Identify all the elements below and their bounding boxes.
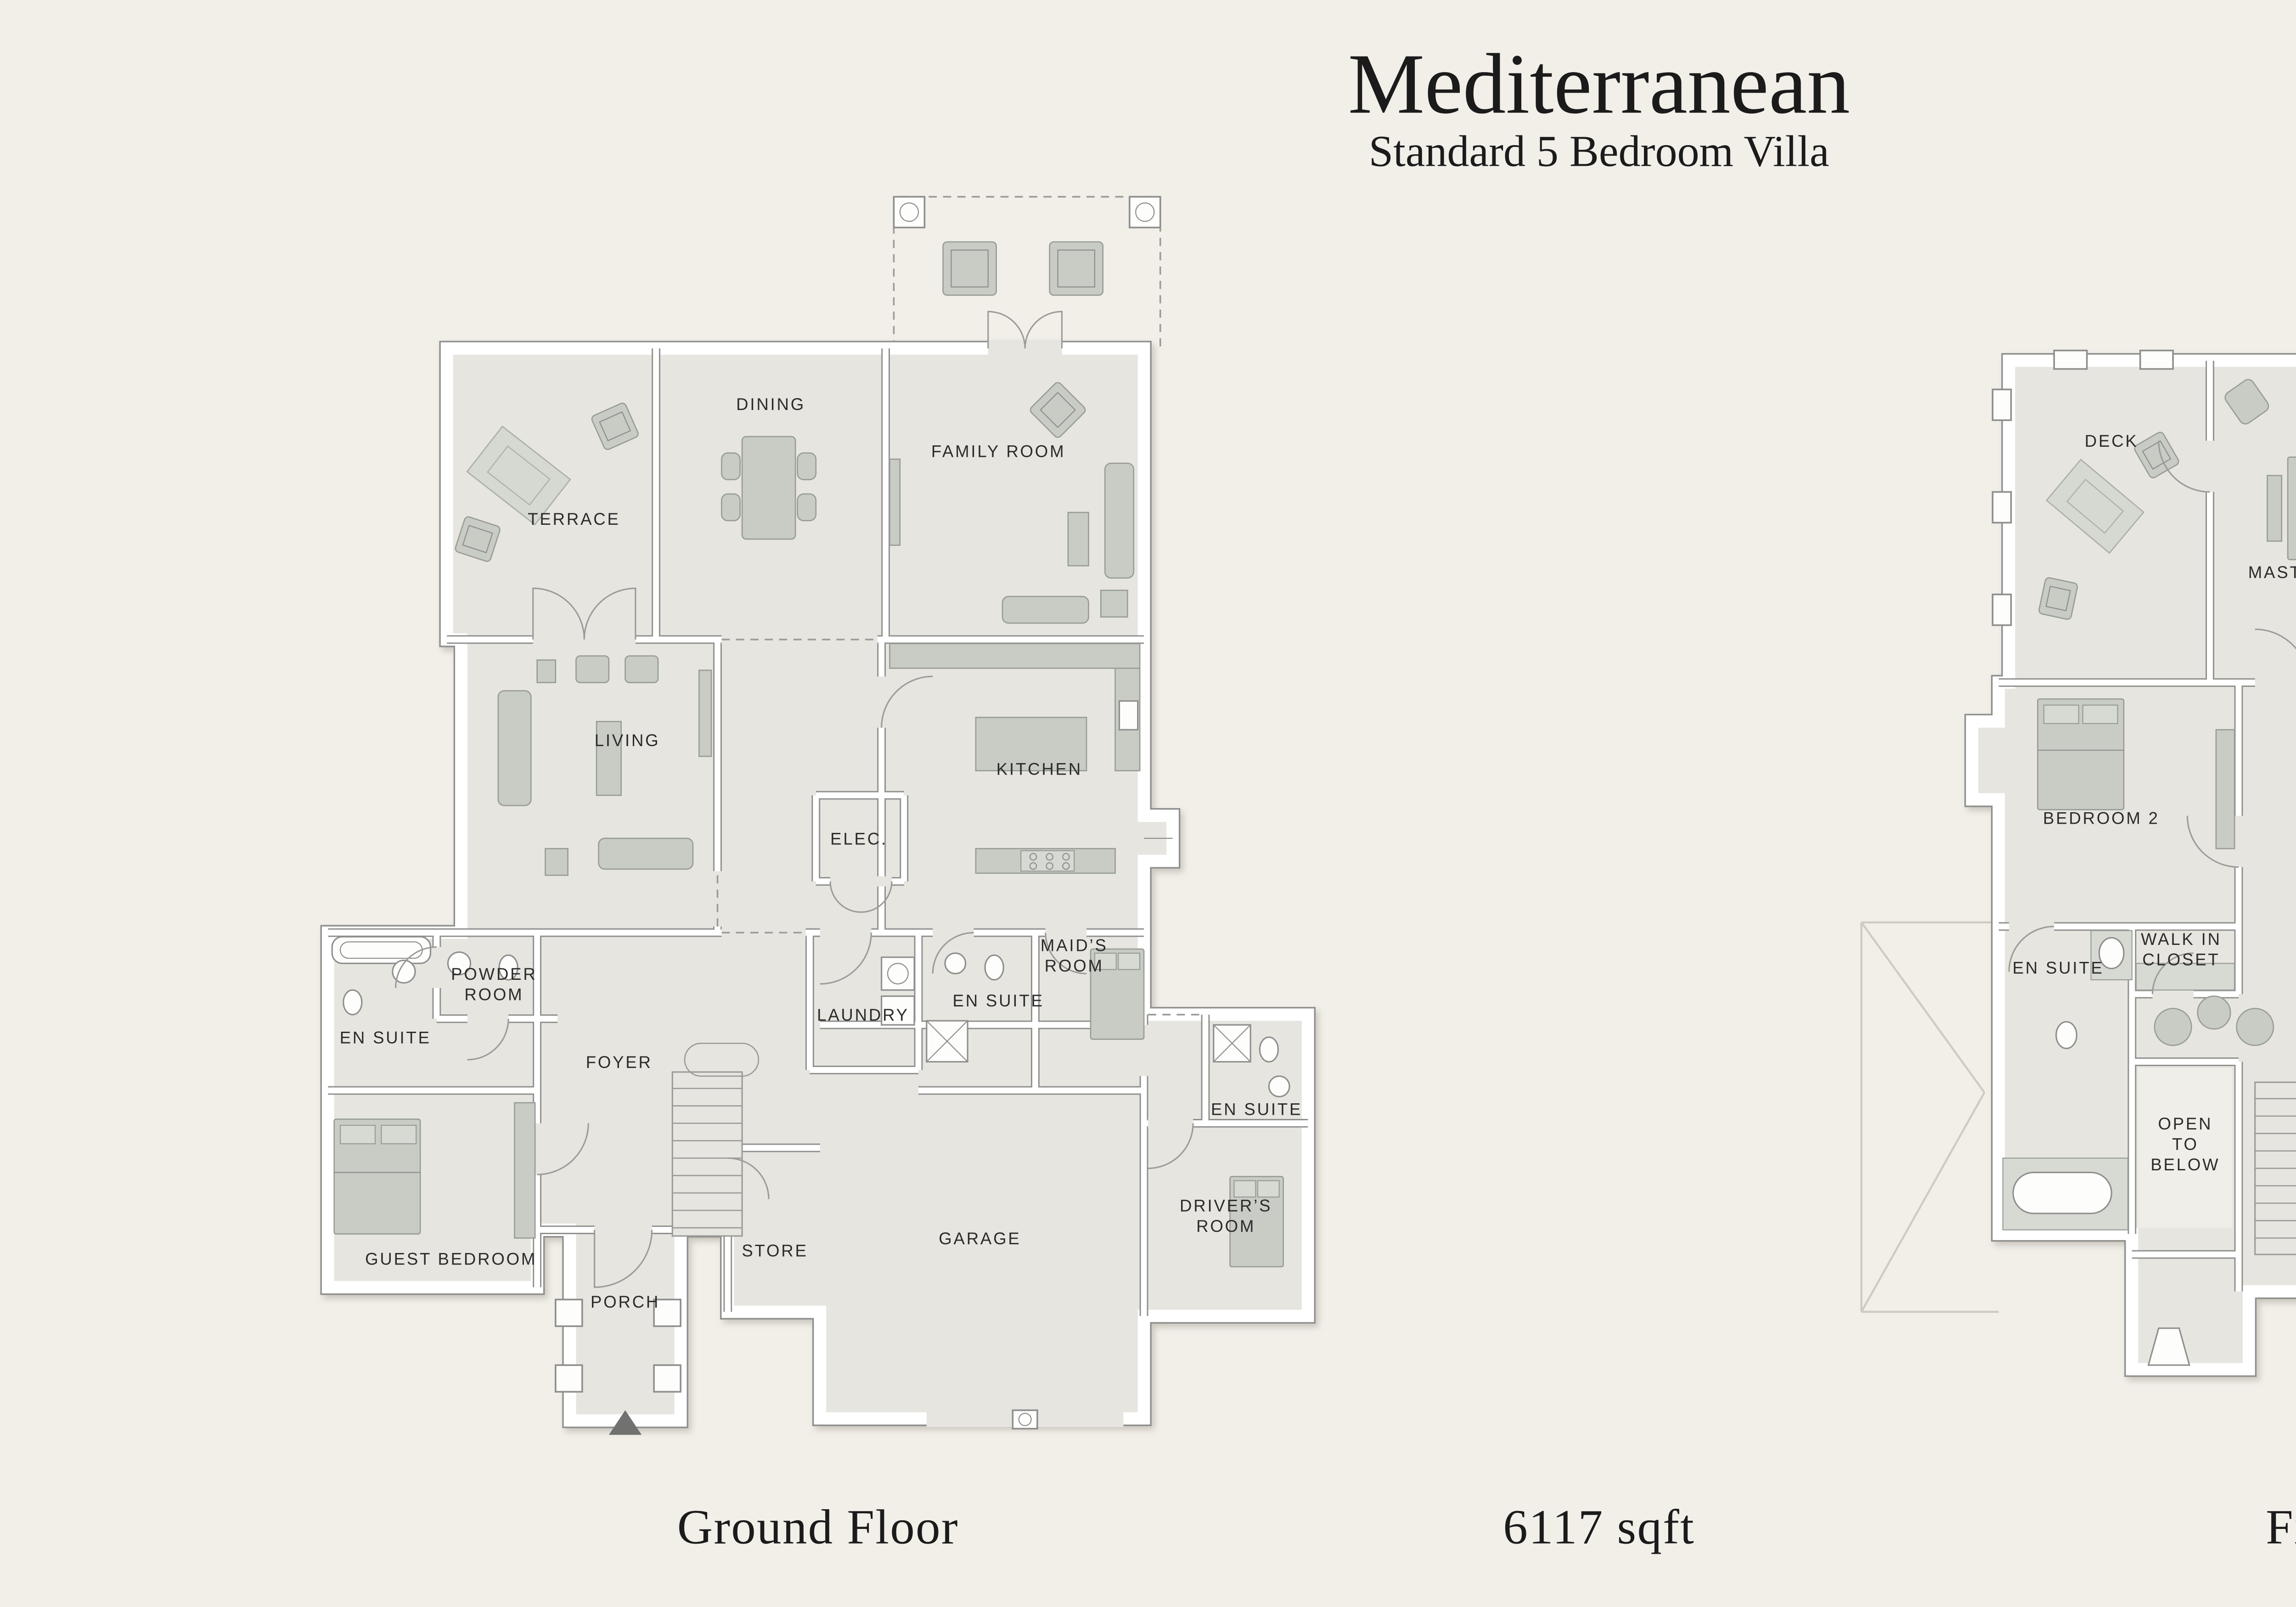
room-label-open-to-below: OPEN bbox=[2158, 1114, 2212, 1133]
room-label-powder-room: ROOM bbox=[464, 985, 523, 1004]
page-title: Mediterranean bbox=[1348, 36, 1850, 132]
room-label-dining: DINING bbox=[736, 395, 805, 414]
room-label-drivers-room: DRIVER’S bbox=[1180, 1196, 1272, 1215]
room-label-terrace: TERRACE bbox=[528, 510, 620, 528]
wardrobe bbox=[2216, 730, 2234, 848]
room-label-open-to-below: TO bbox=[2172, 1135, 2199, 1153]
page-subtitle: Standard 5 Bedroom Villa bbox=[1369, 127, 1829, 176]
room-label-en-suite-maid: EN SUITE bbox=[953, 991, 1044, 1010]
room-label-open-to-below: BELOW bbox=[2150, 1155, 2220, 1174]
room-label-en-suite-driver: EN SUITE bbox=[1211, 1100, 1302, 1119]
pergola-post bbox=[1130, 197, 1160, 228]
room-label-maids-room: ROOM bbox=[1045, 956, 1104, 975]
room-label-foyer: FOYER bbox=[586, 1053, 653, 1072]
room-label-bedroom2: BEDROOM 2 bbox=[2043, 809, 2160, 828]
toilet bbox=[343, 990, 362, 1015]
room-label-en-suite2: EN SUITE bbox=[2013, 959, 2104, 978]
room-label-wic2: WALK IN bbox=[2141, 930, 2222, 949]
room-label-store: STORE bbox=[742, 1242, 808, 1260]
room-label-maids-room: MAID’S bbox=[1041, 936, 1108, 955]
pergola-armchair bbox=[1050, 242, 1103, 295]
wardrobe bbox=[515, 1103, 535, 1238]
area-caption: 6117 sqft bbox=[1503, 1500, 1695, 1555]
pergola-armchair bbox=[943, 242, 996, 295]
room-label-elec: ELEC. bbox=[830, 829, 888, 848]
toilet bbox=[985, 955, 1003, 980]
room-label-drivers-room: ROOM bbox=[1196, 1217, 1255, 1236]
first-floor-plan: DECK MASTER BEDROOM MASTER BATHROOM WALK… bbox=[1862, 201, 2296, 1423]
room-label-powder-room: POWDER bbox=[451, 965, 537, 983]
room-label-laundry: LAUNDRY bbox=[817, 1006, 909, 1024]
room-label-living: LIVING bbox=[595, 731, 660, 750]
bathtub bbox=[332, 937, 430, 963]
sink bbox=[945, 953, 966, 974]
kitchen-sink bbox=[1120, 701, 1138, 730]
room-label-deck-upper: DECK bbox=[2085, 432, 2138, 450]
bathtub bbox=[2013, 1173, 2111, 1214]
ground-floor-plan: TERRACE DINING FAMILY ROOM LIVING KITCHE… bbox=[328, 197, 1308, 1435]
room-label-porch: PORCH bbox=[591, 1292, 660, 1311]
toilet bbox=[1260, 1037, 1278, 1062]
room-label-kitchen: KITCHEN bbox=[996, 760, 1082, 779]
floor-plan-sheet: Mediterranean Standard 5 Bedroom Villa bbox=[0, 0, 2296, 1607]
room-label-garage: GARAGE bbox=[939, 1229, 1021, 1248]
room-label-en-suite-guest: EN SUITE bbox=[340, 1028, 431, 1047]
ground-floor-caption: Ground Floor bbox=[677, 1500, 959, 1555]
room-label-wic2: CLOSET bbox=[2142, 950, 2220, 969]
first-floor-caption: First Floor bbox=[2266, 1500, 2296, 1555]
pergola-post bbox=[894, 197, 924, 228]
toilet bbox=[2056, 1022, 2077, 1048]
garage-fixtures bbox=[1013, 1410, 1037, 1428]
room-label-family-room: FAMILY ROOM bbox=[931, 442, 1066, 461]
ground-pergola bbox=[894, 197, 1160, 348]
footer: Ground Floor 6117 sqft First Floor bbox=[677, 1500, 2296, 1555]
header: Mediterranean Standard 5 Bedroom Villa bbox=[1348, 36, 1850, 176]
first-stairs bbox=[2255, 1082, 2296, 1254]
room-label-guest-bedroom: GUEST BEDROOM bbox=[365, 1249, 537, 1268]
sink bbox=[1269, 1076, 1289, 1097]
room-label-master-bedroom: MASTER BEDROOM bbox=[2248, 563, 2296, 582]
